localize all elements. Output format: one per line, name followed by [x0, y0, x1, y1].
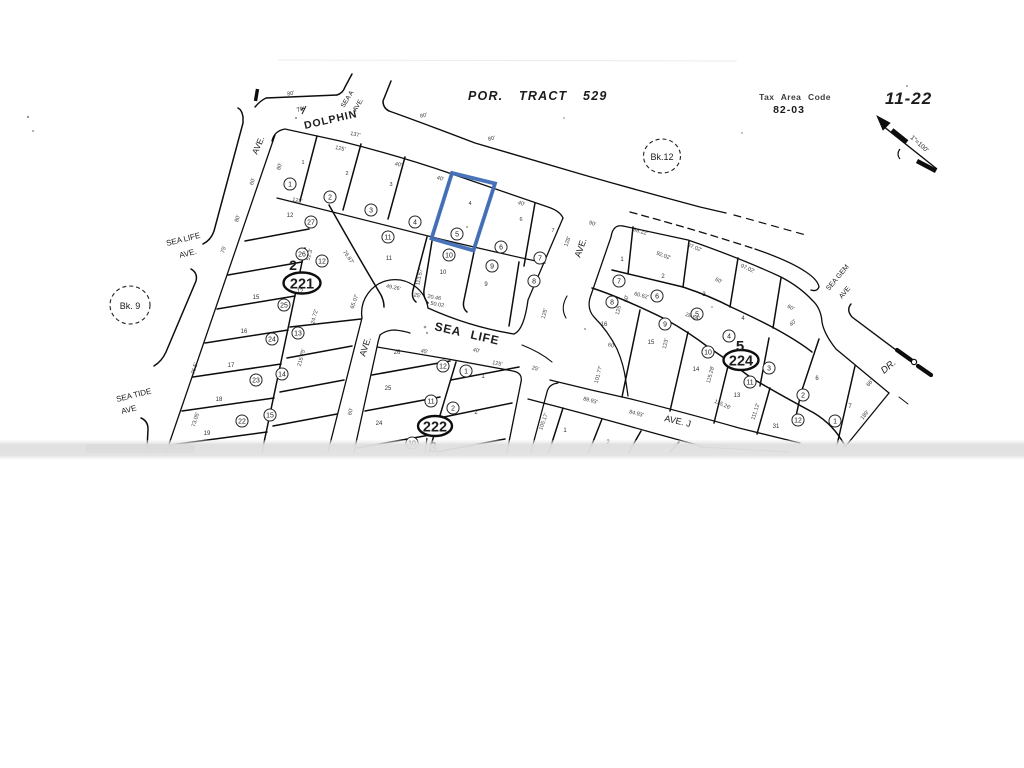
svg-text:101.77': 101.77'	[594, 365, 604, 384]
svg-text:31: 31	[773, 424, 780, 430]
svg-text:2: 2	[801, 393, 805, 400]
svg-text:11-22: 11-22	[885, 89, 932, 108]
svg-text:50.02: 50.02	[430, 301, 445, 309]
svg-text:3: 3	[369, 208, 373, 215]
svg-text:14: 14	[693, 367, 700, 373]
svg-text:AVE: AVE	[120, 403, 137, 415]
svg-text:24: 24	[268, 337, 276, 344]
svg-text:SEA LIFE: SEA LIFE	[165, 231, 201, 248]
svg-text:15: 15	[266, 413, 274, 420]
svg-text:AVE.: AVE.	[357, 336, 373, 358]
svg-text:15: 15	[253, 295, 260, 301]
svg-text:25': 25'	[413, 292, 421, 299]
svg-text:25: 25	[280, 303, 288, 310]
svg-text:10: 10	[445, 253, 453, 260]
svg-text:7: 7	[538, 256, 542, 263]
svg-text:12: 12	[287, 213, 294, 219]
svg-text:AVE.: AVE.	[352, 97, 366, 113]
svg-text:60': 60'	[347, 408, 355, 416]
svg-text:92.02': 92.02'	[655, 251, 671, 262]
svg-text:49.26': 49.26'	[385, 284, 401, 293]
svg-text:76.87': 76.87'	[341, 250, 354, 266]
svg-text:3: 3	[389, 182, 392, 188]
svg-text:AVE.: AVE.	[178, 247, 197, 260]
svg-text:1: 1	[563, 428, 567, 434]
svg-text:137': 137'	[350, 131, 361, 139]
svg-text:40': 40'	[517, 200, 526, 208]
svg-text:10: 10	[704, 350, 712, 357]
svg-text:76.5': 76.5'	[190, 362, 199, 375]
svg-text:79': 79'	[296, 106, 305, 114]
svg-text:80': 80'	[276, 162, 284, 171]
svg-text:9: 9	[484, 282, 488, 288]
svg-text:189': 189'	[860, 410, 871, 422]
svg-text:25': 25'	[531, 365, 539, 373]
svg-text:98.22': 98.22'	[632, 227, 648, 237]
svg-text:113.57': 113.57'	[415, 268, 425, 286]
svg-text:6: 6	[519, 217, 522, 223]
svg-text:17: 17	[228, 363, 235, 369]
svg-text:27: 27	[307, 220, 315, 227]
svg-text:125': 125'	[335, 145, 346, 153]
svg-text:12: 12	[297, 289, 304, 295]
svg-text:2: 2	[474, 410, 478, 416]
svg-text:60': 60'	[607, 342, 616, 350]
svg-text:24: 24	[376, 421, 383, 427]
svg-text:73.05': 73.05'	[191, 412, 201, 428]
svg-text:2: 2	[345, 171, 348, 177]
svg-text:123': 123'	[292, 197, 303, 205]
svg-text:11: 11	[746, 380, 753, 387]
svg-text:8: 8	[532, 279, 536, 286]
svg-text:Tax Area Code: Tax Area Code	[759, 92, 831, 102]
svg-text:19: 19	[204, 431, 211, 437]
svg-text:40': 40'	[472, 347, 480, 354]
svg-text:40': 40'	[394, 161, 402, 168]
svg-text:AVE.: AVE.	[250, 135, 267, 156]
svg-text:1: 1	[288, 182, 292, 189]
svg-text:4: 4	[468, 201, 471, 207]
svg-text:SEA TIDE: SEA TIDE	[115, 387, 152, 404]
svg-text:18: 18	[216, 397, 223, 403]
svg-text:5: 5	[455, 232, 459, 239]
svg-text:Bk.12: Bk.12	[650, 152, 673, 162]
svg-text:105.17': 105.17'	[538, 412, 550, 431]
svg-text:60': 60'	[249, 177, 257, 186]
svg-text:1: 1	[464, 369, 468, 376]
svg-text:82-03: 82-03	[773, 104, 805, 116]
svg-text:24.72': 24.72'	[310, 309, 320, 325]
svg-text:13: 13	[734, 393, 741, 399]
svg-text:AVE.: AVE.	[572, 237, 588, 259]
svg-text:1: 1	[620, 257, 624, 263]
svg-text:2: 2	[451, 406, 455, 413]
svg-text:2: 2	[289, 257, 297, 273]
svg-text:15: 15	[648, 340, 655, 346]
svg-text:9: 9	[490, 264, 494, 271]
svg-text:125': 125'	[615, 304, 623, 315]
svg-text:6: 6	[815, 376, 819, 382]
svg-text:4: 4	[727, 334, 731, 341]
svg-text:11: 11	[384, 235, 391, 242]
svg-text:84.93': 84.93'	[628, 409, 644, 419]
svg-text:AVE. J: AVE. J	[664, 413, 692, 429]
svg-text:12: 12	[439, 364, 447, 371]
svg-text:125': 125'	[541, 308, 549, 319]
svg-text:60': 60'	[714, 277, 723, 285]
svg-text:40': 40'	[436, 175, 444, 183]
svg-text:89.93': 89.93'	[582, 396, 598, 406]
svg-text:2: 2	[661, 274, 665, 280]
svg-text:123': 123'	[662, 338, 670, 349]
svg-text:224: 224	[729, 354, 753, 370]
svg-text:4: 4	[413, 220, 417, 227]
svg-text:POR. TRACT 529: POR. TRACT 529	[468, 89, 608, 103]
svg-text:7: 7	[848, 404, 852, 410]
svg-text:26: 26	[298, 252, 306, 259]
svg-text:9: 9	[663, 322, 667, 329]
svg-text:AVE: AVE	[838, 285, 852, 300]
svg-text:7: 7	[551, 228, 554, 234]
svg-text:Bk. 9: Bk. 9	[120, 301, 141, 311]
svg-text:90': 90'	[588, 220, 597, 228]
svg-text:12: 12	[318, 259, 326, 266]
svg-text:DR.: DR.	[879, 357, 899, 376]
svg-text:14: 14	[278, 372, 286, 379]
svg-text:11: 11	[427, 399, 434, 406]
svg-text:12: 12	[794, 418, 802, 425]
svg-text:80': 80'	[287, 90, 295, 97]
svg-text:10: 10	[440, 270, 447, 276]
svg-text:222: 222	[423, 420, 447, 436]
svg-text:2: 2	[328, 195, 332, 202]
svg-text:65.07': 65.07'	[350, 294, 361, 310]
svg-text:60': 60'	[786, 304, 795, 313]
svg-text:23: 23	[252, 378, 260, 385]
svg-text:7: 7	[617, 279, 621, 286]
svg-text:3: 3	[767, 366, 771, 373]
svg-text:80': 80'	[488, 135, 496, 143]
svg-text:60.62': 60.62'	[633, 291, 649, 301]
svg-text:8: 8	[610, 300, 614, 307]
svg-text:16: 16	[241, 329, 248, 335]
svg-text:1: 1	[301, 160, 304, 166]
svg-text:22: 22	[238, 419, 246, 426]
svg-text:75': 75'	[220, 245, 228, 254]
svg-text:80': 80'	[420, 112, 428, 120]
svg-text:115.28': 115.28'	[706, 366, 716, 384]
svg-text:215.75': 215.75'	[297, 348, 307, 367]
svg-text:16: 16	[601, 322, 608, 328]
svg-text:4: 4	[741, 316, 745, 322]
svg-text:6: 6	[655, 294, 659, 301]
svg-text:1: 1	[833, 419, 837, 426]
svg-text:1: 1	[481, 374, 485, 380]
svg-text:5: 5	[736, 338, 744, 355]
svg-text:60': 60'	[623, 295, 630, 303]
svg-text:40': 40'	[789, 319, 798, 328]
svg-text:DOLPHIN: DOLPHIN	[303, 108, 359, 132]
svg-text:26: 26	[394, 350, 401, 356]
svg-text:13: 13	[294, 331, 302, 338]
svg-text:111.12': 111.12'	[751, 403, 762, 421]
svg-text:128': 128'	[563, 236, 572, 248]
svg-text:80': 80'	[234, 214, 242, 223]
svg-text:115.26': 115.26'	[713, 399, 731, 412]
svg-text:11: 11	[386, 256, 393, 262]
svg-text:6: 6	[499, 245, 503, 252]
svg-text:25: 25	[385, 386, 392, 392]
svg-text:1"=100': 1"=100'	[909, 134, 930, 154]
